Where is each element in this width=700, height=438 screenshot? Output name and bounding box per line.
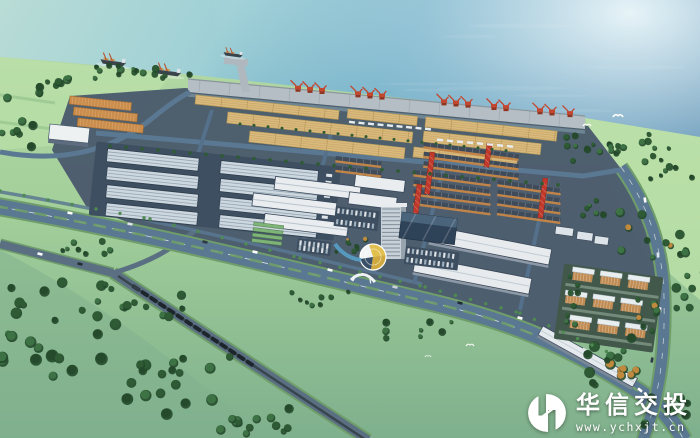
rendering-image: 华信交投 www.ychxjt.cn bbox=[0, 0, 700, 438]
watermark-url: www.ychxjt.cn bbox=[576, 421, 686, 433]
watermark-brand: 华信交投 bbox=[576, 393, 692, 418]
rendering-canvas bbox=[0, 0, 700, 438]
hx-logo-icon bbox=[527, 393, 567, 433]
watermark: 华信交投 www.ychxjt.cn bbox=[527, 393, 692, 433]
watermark-text: 华信交投 www.ychxjt.cn bbox=[576, 393, 692, 432]
